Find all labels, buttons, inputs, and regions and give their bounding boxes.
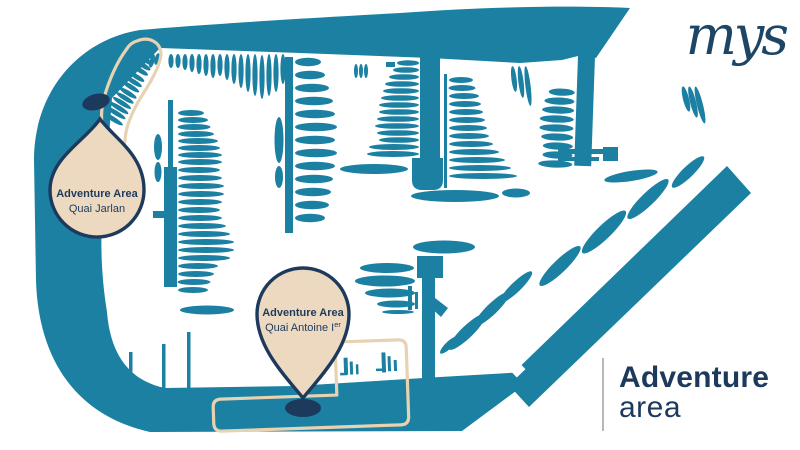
moored-boats-t-pier-west <box>340 60 419 174</box>
moored-boats-north-quay <box>168 54 533 106</box>
pin-jarlan-subtitle: Quai Jarlan <box>69 203 125 215</box>
pin-jarlan-title: Adventure Area <box>56 188 138 200</box>
area-caption: Adventure area <box>602 358 769 431</box>
monaco-yacht-show-map-page: Adventure Area Quai Jarlan Adventure Are… <box>0 0 800 450</box>
mys-logo: mys <box>668 6 798 70</box>
pin-anchor-dot-antoine <box>285 399 321 417</box>
moored-boats-south-center <box>355 241 475 315</box>
caption-line1: Adventure <box>619 362 769 393</box>
pier-center-left <box>285 57 293 233</box>
quay-east-structures <box>558 147 658 185</box>
pier-south-center <box>417 256 448 380</box>
quayside-boat-marks <box>339 352 397 375</box>
pin-antoine-subtitle: Quai Antoine Ier <box>265 320 341 334</box>
pin-antoine-title: Adventure Area <box>262 307 344 319</box>
pier-t-shaped <box>412 53 447 190</box>
pier-west <box>153 100 177 287</box>
caption-line2: area <box>619 393 769 423</box>
